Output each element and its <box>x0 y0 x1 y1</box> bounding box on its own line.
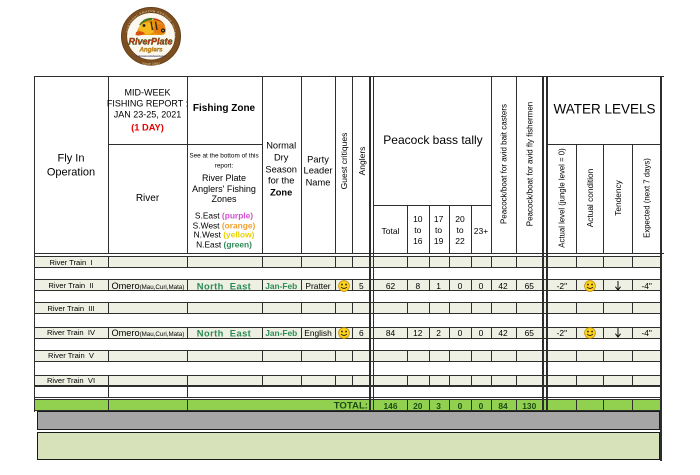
svg-text:❧AmazonAdventures: ❧AmazonAdventures <box>136 54 167 58</box>
svg-text:Anglers: Anglers <box>138 47 163 54</box>
svg-text:RiverPlate: RiverPlate <box>128 37 172 47</box>
svg-text:Since 1992: Since 1992 <box>142 62 160 66</box>
